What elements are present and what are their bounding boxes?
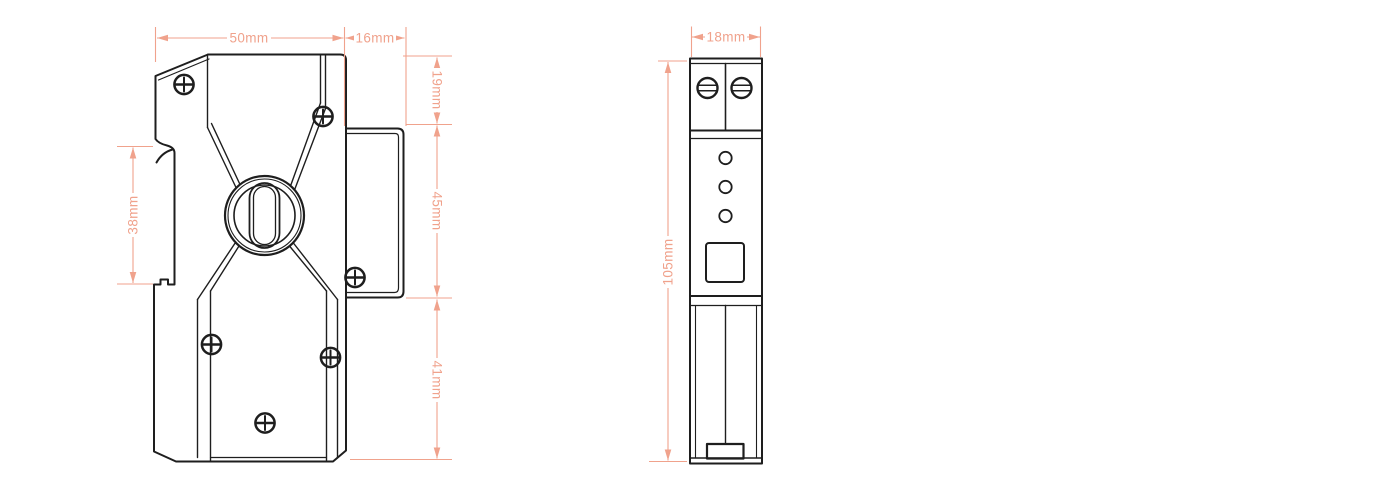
front-dimensions: 50mm 16mm 19mm 45mm xyxy=(117,27,452,460)
arrowhead xyxy=(130,148,137,159)
led-indicator xyxy=(719,152,731,164)
ridge-line xyxy=(198,243,236,300)
arrowhead xyxy=(333,35,344,42)
dim-height-block: 45mm xyxy=(429,126,444,297)
status-window xyxy=(706,243,744,282)
knob-grip-inner xyxy=(254,187,276,245)
dim-height-bottom: 41mm xyxy=(429,300,444,459)
ridge-line xyxy=(211,246,240,291)
phillips-screw xyxy=(255,413,274,432)
din-clip-hook xyxy=(157,150,173,163)
dim-label-height-block: 45mm xyxy=(429,191,444,230)
dim-height-top: 19mm xyxy=(429,58,444,124)
phillips-screw xyxy=(313,107,332,126)
dim-width-block: 16mm xyxy=(346,31,405,46)
arrowhead xyxy=(157,35,168,42)
dimension-drawing: 50mm 16mm 19mm 45mm xyxy=(0,0,1400,480)
indicator-leds xyxy=(719,152,731,222)
arrowhead xyxy=(692,34,703,41)
arrowhead xyxy=(434,300,441,311)
arrowhead xyxy=(434,286,441,297)
knob-outer-ring xyxy=(225,176,304,255)
knob-inner-ring xyxy=(234,185,295,246)
dim-side-height: 105mm xyxy=(661,62,676,461)
dim-label-height-top: 19mm xyxy=(429,70,444,109)
dim-label-side-width: 18mm xyxy=(706,30,745,45)
dim-side-width: 18mm xyxy=(692,30,760,45)
canvas: 50mm 16mm 19mm 45mm xyxy=(0,0,1400,480)
ridge-line xyxy=(212,124,241,185)
terminal-screws xyxy=(698,78,752,98)
din-clip-foot xyxy=(707,444,744,459)
extension-lines xyxy=(117,27,452,460)
dim-label-width-block: 16mm xyxy=(355,31,394,46)
dim-label-width-main: 50mm xyxy=(229,31,268,46)
phillips-screw xyxy=(202,335,221,354)
slotted-screw xyxy=(732,78,752,98)
led-indicator xyxy=(719,210,731,222)
phillips-screw xyxy=(345,268,364,287)
dim-width-main: 50mm xyxy=(157,31,344,46)
side-view xyxy=(690,59,762,464)
knob-middle-ring xyxy=(228,179,301,252)
dim-rail-clip: 38mm xyxy=(126,148,141,284)
ridge-line xyxy=(295,109,326,191)
arrowhead xyxy=(665,62,672,73)
phillips-screw xyxy=(321,348,340,367)
led-indicator xyxy=(719,181,731,193)
front-view xyxy=(154,55,404,462)
arrowhead xyxy=(665,450,672,461)
slotted-screw xyxy=(698,78,718,98)
arrowhead xyxy=(434,58,441,69)
ridge-line xyxy=(293,243,338,300)
ridge-line xyxy=(208,128,237,188)
arrowhead xyxy=(434,448,441,459)
dim-label-height-bottom: 41mm xyxy=(429,360,444,399)
dim-label-rail-clip: 38mm xyxy=(126,195,141,234)
arrowhead xyxy=(130,272,137,283)
arrowhead xyxy=(749,34,760,41)
ridge-line xyxy=(290,246,327,291)
arrowhead xyxy=(434,113,441,124)
rotary-knob xyxy=(225,176,304,255)
arrowhead xyxy=(434,126,441,137)
phillips-screw xyxy=(174,75,193,94)
dim-label-side-height: 105mm xyxy=(661,238,676,285)
